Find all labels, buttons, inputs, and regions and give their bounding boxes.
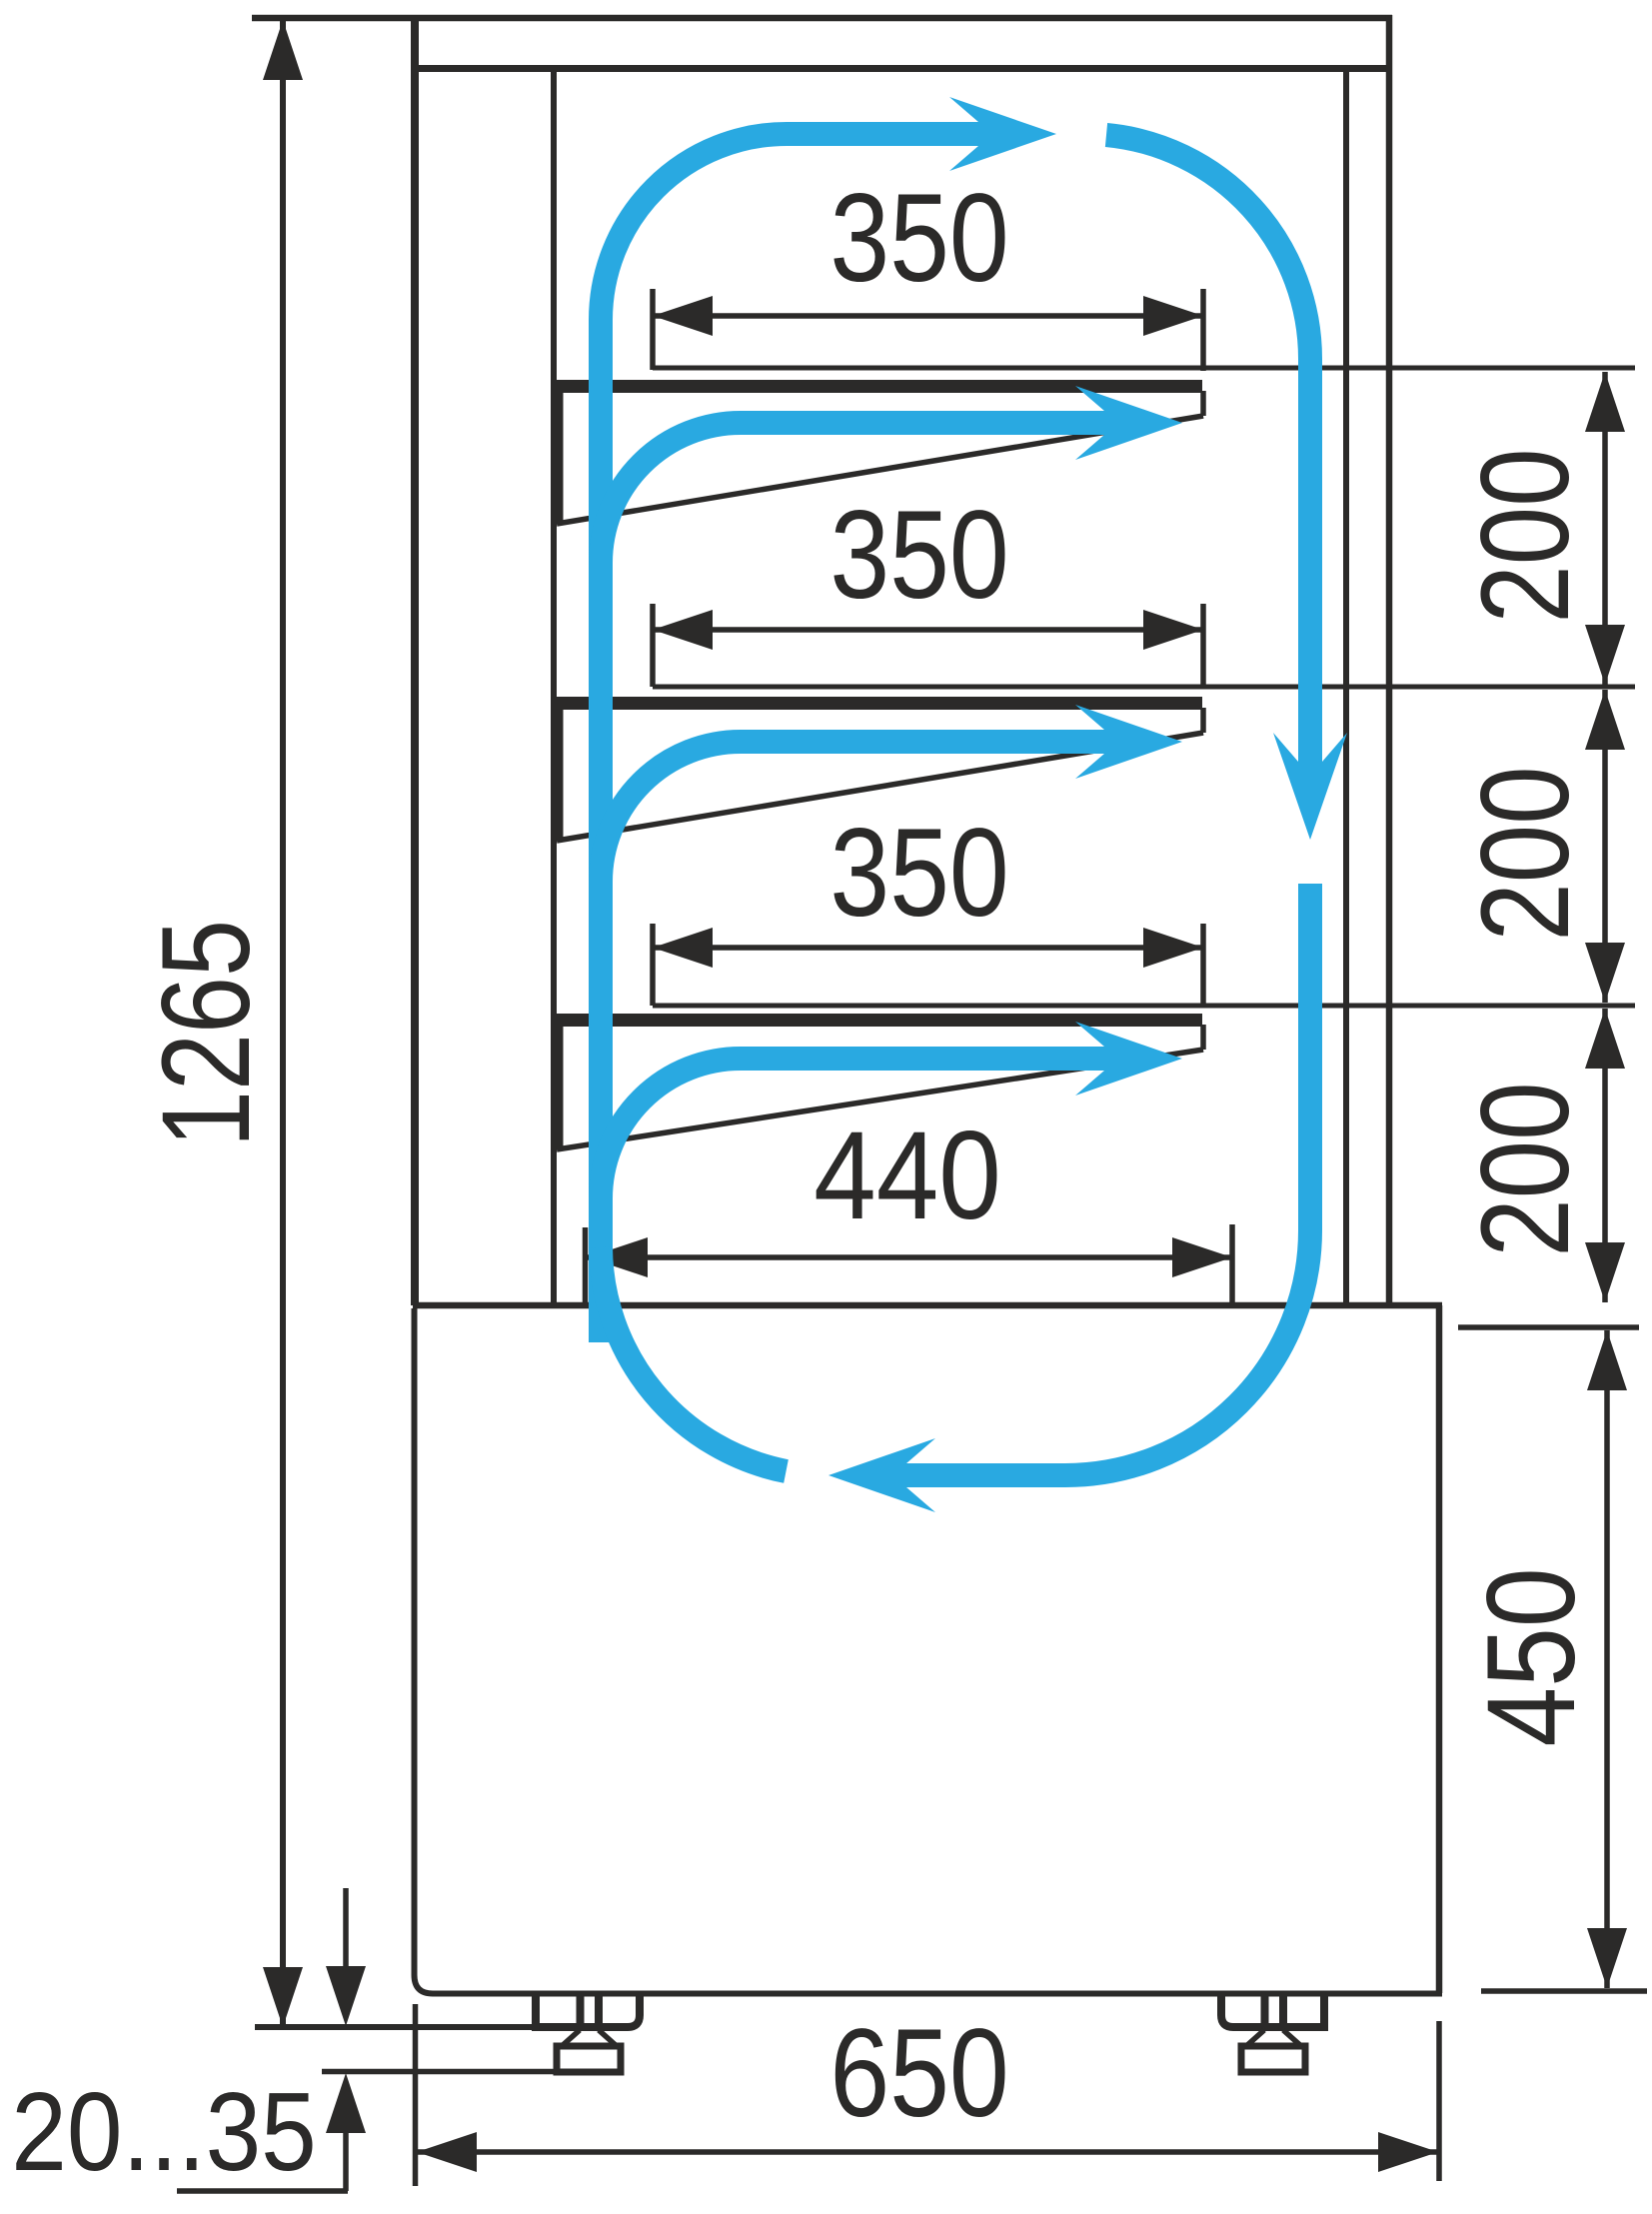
svg-text:200: 200 xyxy=(1456,448,1595,623)
svg-text:650: 650 xyxy=(829,2002,1008,2142)
svg-text:450: 450 xyxy=(1460,1567,1600,1746)
svg-text:20...35: 20...35 xyxy=(11,2070,316,2194)
svg-text:350: 350 xyxy=(829,484,1008,624)
svg-text:350: 350 xyxy=(829,167,1008,307)
svg-text:200: 200 xyxy=(1456,1082,1595,1256)
svg-text:200: 200 xyxy=(1456,766,1595,941)
svg-text:350: 350 xyxy=(829,802,1008,942)
svg-text:1265: 1265 xyxy=(137,920,276,1147)
svg-text:440: 440 xyxy=(814,1107,1001,1246)
